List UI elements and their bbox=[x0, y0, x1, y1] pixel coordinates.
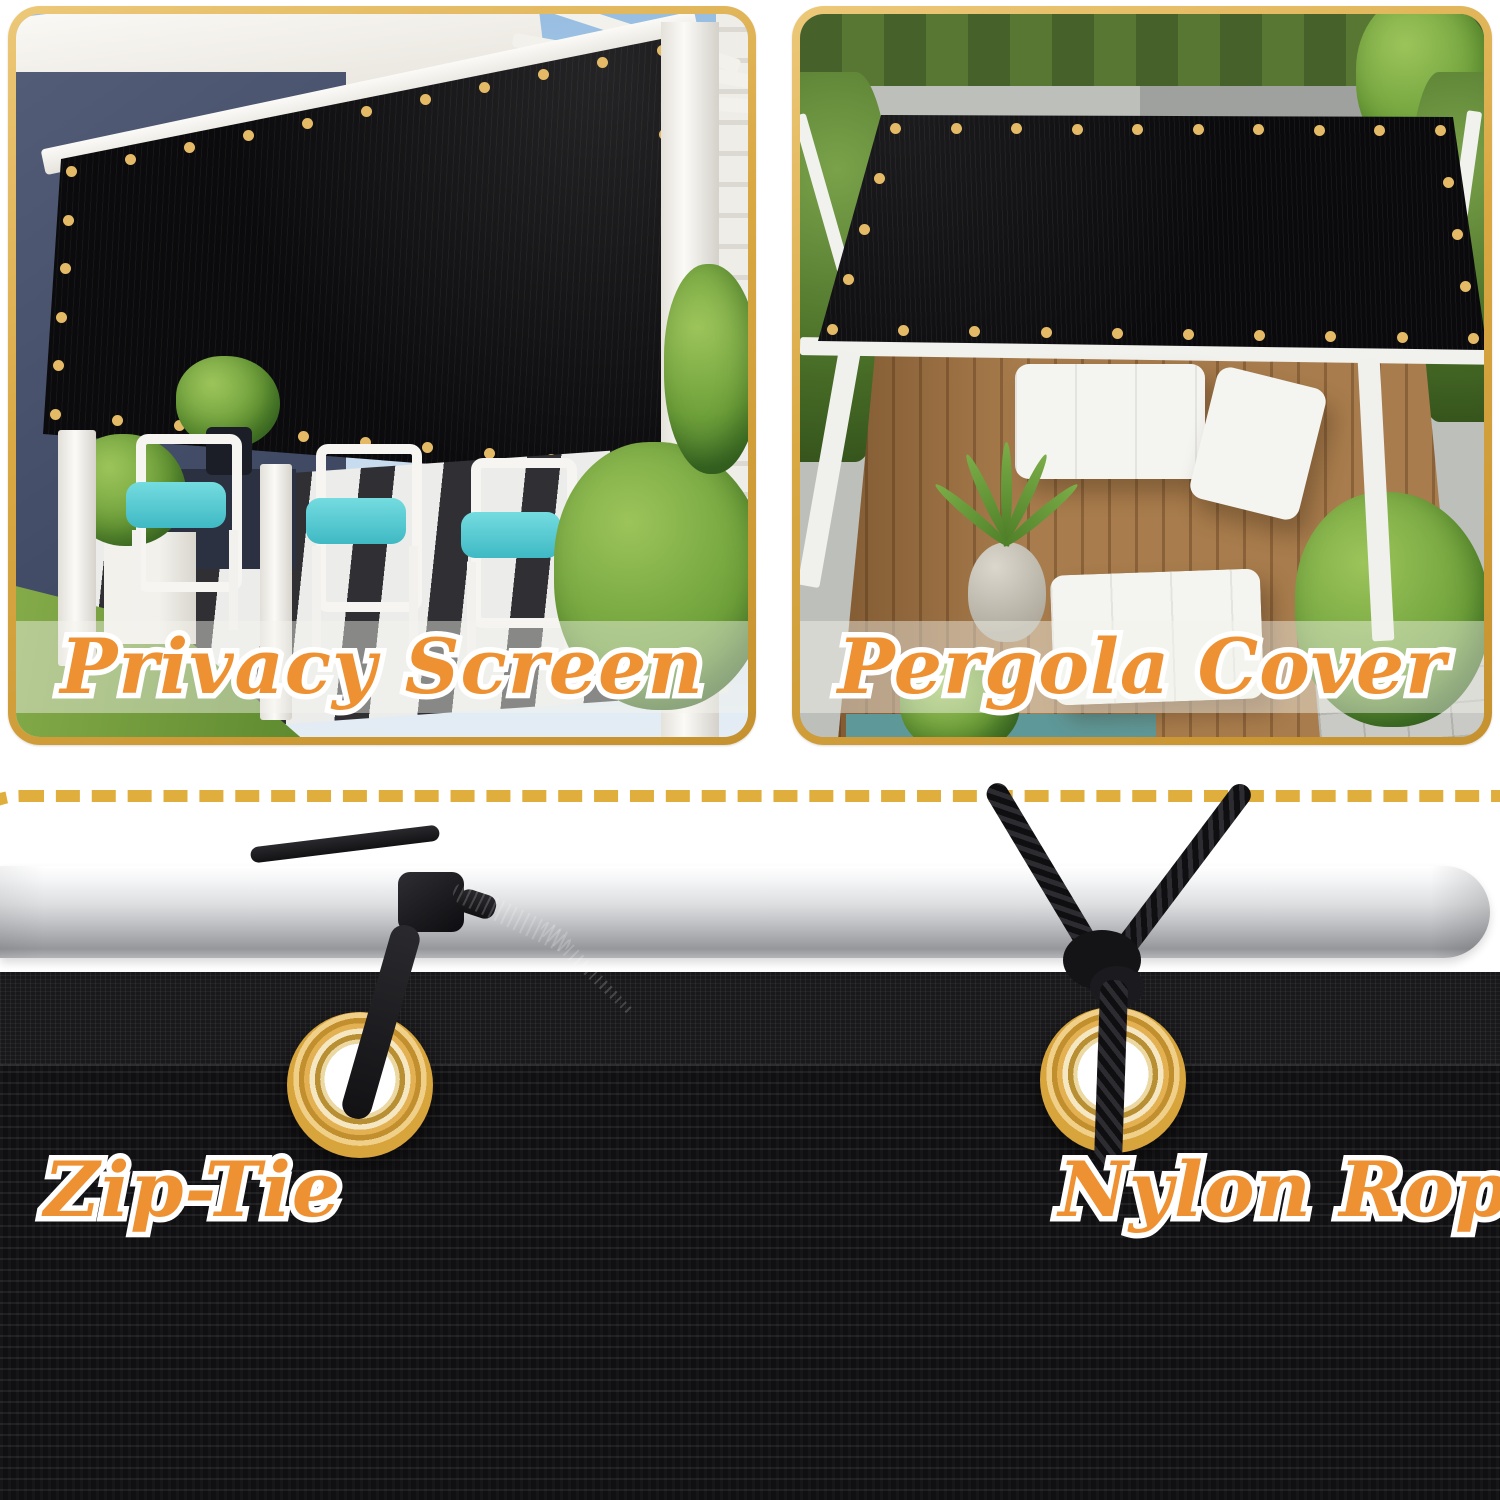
teal-cushion bbox=[306, 498, 406, 544]
cover-grommets bbox=[800, 14, 811, 25]
shade-mesh-edge bbox=[0, 972, 1500, 1064]
privacy-screen-panel: Privacy Screen Privacy Screen bbox=[8, 6, 756, 745]
pergola-cover-label: Pergola Cover Pergola Cover bbox=[838, 629, 1447, 705]
teal-cushion bbox=[126, 482, 226, 528]
zip-tie-head bbox=[398, 872, 464, 932]
product-feature-collage: Privacy Screen Privacy Screen bbox=[0, 0, 1500, 1500]
pergola-cover-photo: Pergola Cover Pergola Cover bbox=[800, 14, 1484, 737]
shade-mesh-fabric bbox=[0, 1064, 1500, 1500]
mounting-pole bbox=[0, 866, 1490, 958]
label-text: Nylon Rope bbox=[1058, 1145, 1500, 1234]
label-text: Privacy Screen bbox=[60, 622, 704, 711]
caption-band: Privacy Screen Privacy Screen bbox=[16, 621, 748, 713]
bush bbox=[664, 264, 748, 474]
screen-grommets bbox=[16, 14, 27, 25]
label-text: Pergola Cover bbox=[838, 622, 1447, 711]
privacy-screen-photo: Privacy Screen Privacy Screen bbox=[16, 14, 748, 737]
pergola-cover-panel: Pergola Cover Pergola Cover bbox=[792, 6, 1492, 745]
caption-band: Pergola Cover Pergola Cover bbox=[800, 621, 1484, 713]
label-text: Zip-Tie bbox=[44, 1145, 341, 1234]
nylon-rope-label: Nylon Rope Nylon Rope bbox=[1058, 1152, 1500, 1228]
teal-cushion bbox=[461, 512, 561, 558]
zip-tie-label: Zip-Tie Zip-Tie bbox=[44, 1152, 341, 1228]
privacy-screen-label: Privacy Screen Privacy Screen bbox=[60, 629, 704, 705]
chair-legs bbox=[132, 530, 238, 630]
